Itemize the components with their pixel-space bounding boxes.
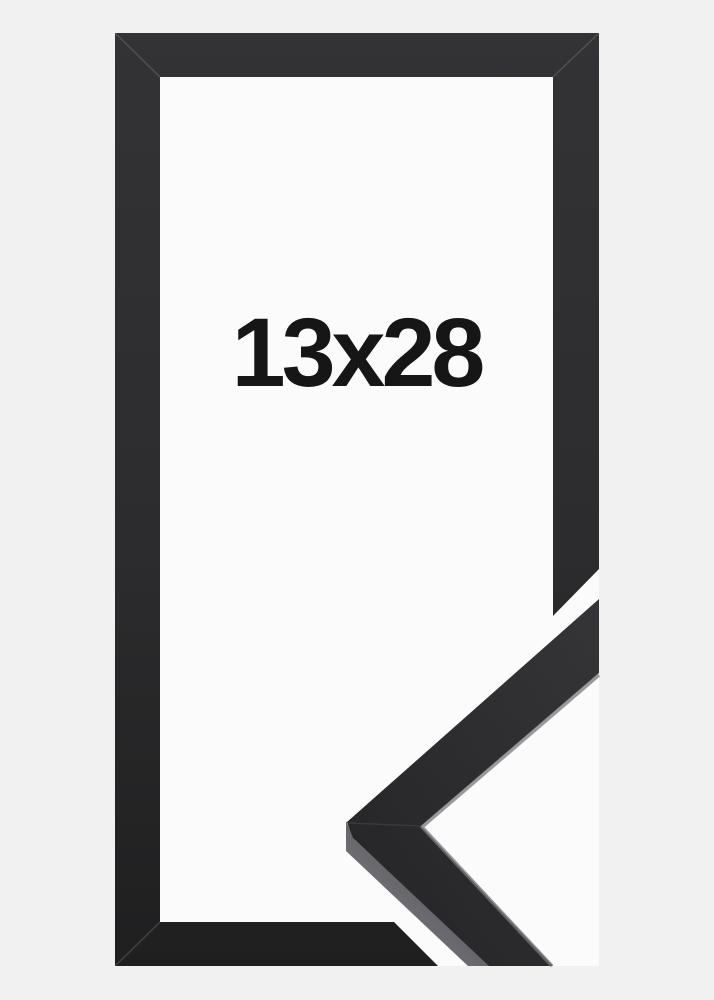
product-image: 13x28 [0, 0, 714, 1000]
frame-illustration [0, 0, 714, 1000]
size-label: 13x28 [160, 304, 553, 401]
